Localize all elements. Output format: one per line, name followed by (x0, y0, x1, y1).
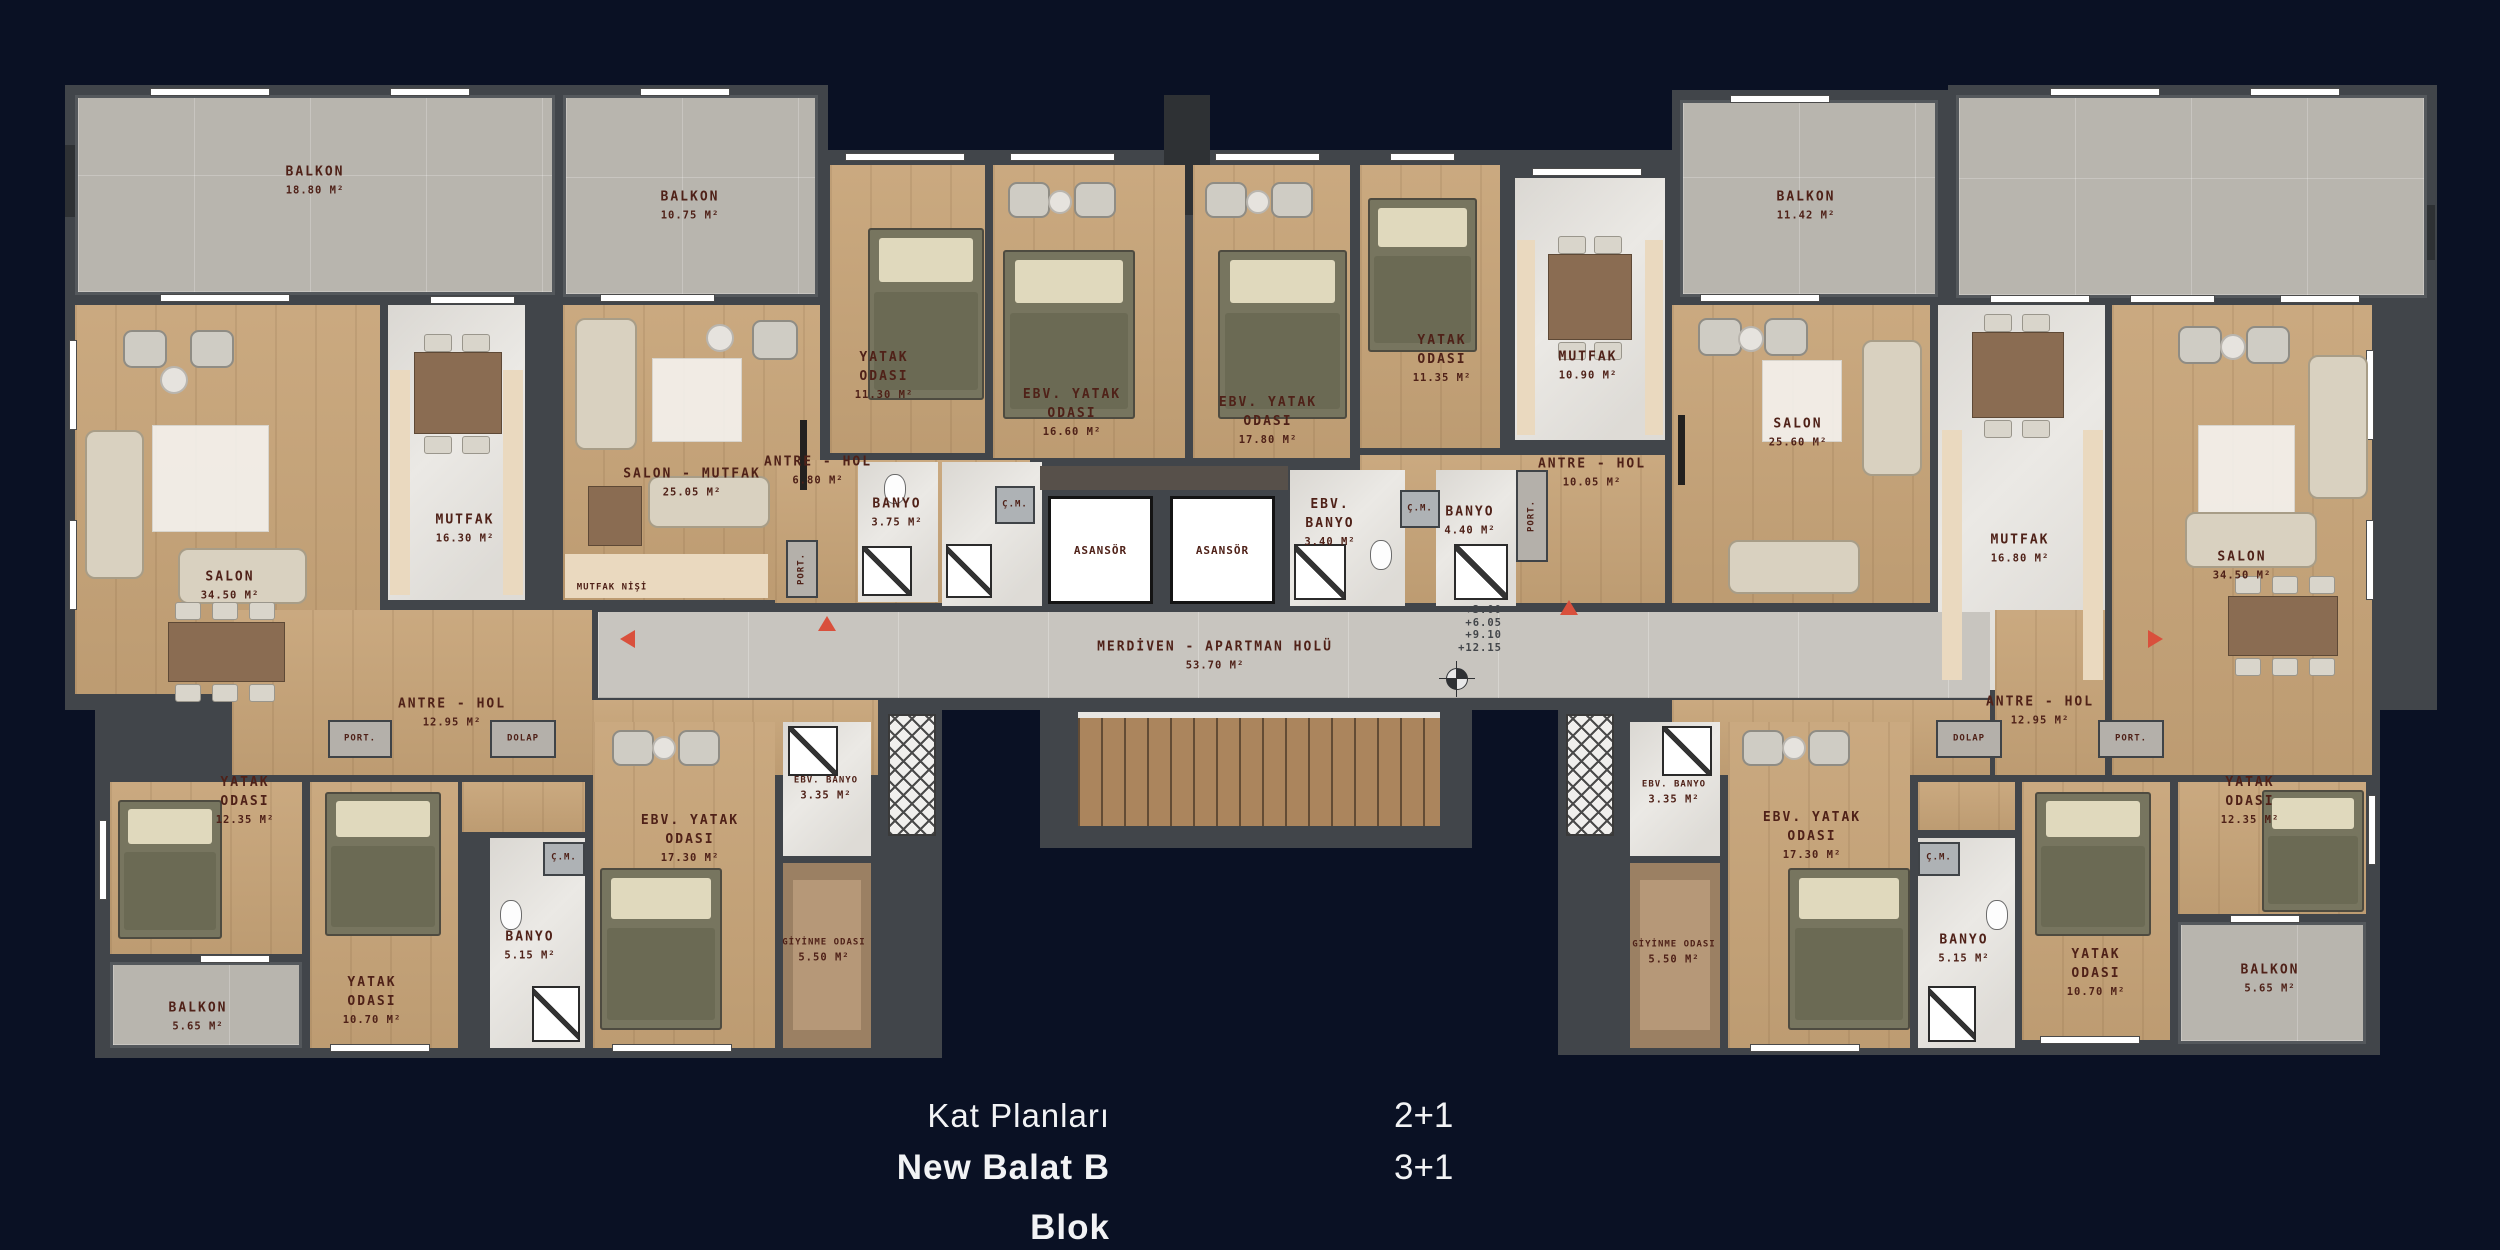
caption-block: Kat Planları New Balat B Blok (858, 1094, 1110, 1250)
armchair (1808, 730, 1850, 766)
rug (152, 425, 269, 532)
room-label-mutfak-nisi: MUTFAK NİŞİ (577, 581, 648, 594)
room-label-mutfak-1630: MUTFAK16.30 M² (436, 512, 495, 545)
kitchen-chair (2022, 420, 2050, 438)
window (1010, 153, 1115, 161)
room-label-antre-1005: ANTRE - HOL10.05 M² (1538, 456, 1646, 489)
label-port-left: PORT. (344, 732, 376, 745)
room-label-giyinme-left: GİYİNME ODASI5.50 M² (782, 936, 866, 963)
window (99, 820, 107, 900)
staircase (1078, 712, 1440, 826)
window (430, 296, 515, 304)
toilet (1986, 900, 2008, 930)
elevator-2-label: ASANSÖR (1196, 544, 1249, 557)
room-label-salon-2560: SALON25.60 M² (1769, 416, 1828, 449)
room-label-banyo-515-left: BANYO5.15 M² (504, 929, 555, 962)
room-label-ebv-banyo-335-left: EBV. BANYO3.35 M² (791, 774, 861, 801)
balcony-top-right (1956, 95, 2427, 298)
kitchen-chair (1984, 314, 2012, 332)
sofa (575, 318, 637, 450)
window (1730, 95, 1830, 103)
sofa (1862, 340, 1922, 476)
dining-chair (2272, 576, 2298, 594)
label-dolap-left: DOLAP (507, 732, 539, 745)
room-label-yatak-1130: YATAK ODASI11.30 M² (834, 349, 934, 401)
room-label-balkon-1142: BALKON11.42 M² (1777, 189, 1836, 222)
window (1700, 294, 1820, 302)
kitchen-counter (2083, 430, 2103, 680)
window (160, 294, 290, 302)
dining-table (168, 622, 285, 682)
room-label-salon-left: SALON34.50 M² (201, 569, 260, 602)
shower (532, 986, 580, 1042)
elevation-marks: +3.00 +6.05 +9.10 +12.15 (1440, 604, 1502, 654)
rug (2198, 425, 2295, 515)
kitchen-chair (1558, 236, 1586, 254)
unit-types-block: 2+1 3+1 (1394, 1094, 1453, 1198)
coffee-table (160, 366, 188, 394)
room-label-antre-680: ANTRE - HOL6.80 M² (764, 454, 872, 487)
kitchen-counter (390, 370, 410, 595)
sofa (2308, 355, 2368, 499)
room-label-banyo-440: BANYO4.40 M² (1444, 504, 1495, 537)
room-label-yatak-1235-left: YATAK ODASI12.35 M² (195, 774, 295, 826)
armchair (752, 320, 798, 360)
coffee-table (1782, 736, 1806, 760)
elevator-2: ASANSÖR (1170, 496, 1275, 604)
label-port-right: PORT. (2115, 732, 2147, 745)
room-label-banyo-375: BANYO3.75 M² (871, 496, 922, 529)
armchair (1074, 182, 1116, 218)
sofa (1728, 540, 1860, 594)
bed (1368, 198, 1477, 352)
window (390, 88, 470, 96)
bed (600, 868, 722, 1030)
balcony-door (200, 955, 270, 963)
room-label-yatak-1070-left: YATAK ODASI10.70 M² (322, 974, 422, 1026)
elevator-1: ASANSÖR (1048, 496, 1153, 604)
window (69, 520, 77, 610)
room-bath-approach-left (462, 782, 585, 832)
kitchen-chair (424, 334, 452, 352)
room-label-ebv-banyo-335-right: EBV. BANYO3.35 M² (1639, 778, 1709, 805)
direction-arrow-left-icon (620, 630, 635, 648)
kitchen-table (1972, 332, 2064, 418)
window (612, 1044, 732, 1052)
window (2040, 1036, 2140, 1044)
armchair (1205, 182, 1247, 218)
dining-chair (2309, 658, 2335, 676)
window (2368, 795, 2376, 865)
room-label-salon-right: SALON34.50 M² (2213, 549, 2272, 582)
window (640, 88, 730, 96)
window (2130, 295, 2215, 303)
rug (652, 358, 742, 442)
window (845, 153, 965, 161)
survey-compass-icon (1446, 668, 1468, 690)
elevation-value: +12.15 (1440, 642, 1502, 655)
room-label-giyinme-right: GİYİNME ODASI5.50 M² (1632, 938, 1716, 965)
side-stair-left (888, 714, 936, 836)
elevator-1-label: ASANSÖR (1074, 544, 1127, 557)
kitchen-table (414, 352, 502, 434)
window (330, 1044, 430, 1052)
window (1750, 1044, 1860, 1052)
bed (325, 792, 441, 936)
room-label-ebv-1660: EBV. YATAK ODASI16.60 M² (997, 386, 1147, 438)
room-label-balkon-1075: BALKON10.75 M² (661, 189, 720, 222)
window (69, 340, 77, 430)
armchair (2246, 326, 2290, 364)
armchair (678, 730, 720, 766)
sofa (85, 430, 144, 579)
direction-arrow-right-icon (2148, 630, 2163, 648)
label-cm-left: Ç.M. (551, 851, 577, 864)
label-cm-right: Ç.M. (1926, 851, 1952, 864)
kitchen-counter (1517, 240, 1535, 435)
label-cm-center-left: Ç.M. (1002, 498, 1028, 511)
label-port-center-left: PORT. (795, 553, 808, 585)
kitchen-counter (1942, 430, 1962, 680)
room-label-ebv-banyo-340: EBV. BANYO3.40 M² (1287, 496, 1373, 548)
armchair (1742, 730, 1784, 766)
room-label-mutfak-1680: MUTFAK16.80 M² (1991, 532, 2050, 565)
direction-arrow-up-icon (818, 616, 836, 631)
armchair (123, 330, 167, 368)
window (600, 294, 715, 302)
elevator-shaft-wall (1040, 466, 1288, 490)
kitchen-chair (462, 436, 490, 454)
tv-unit (1678, 415, 1685, 485)
dining-chair (212, 684, 238, 702)
window (1390, 153, 1455, 161)
label-dolap-right: DOLAP (1953, 732, 1985, 745)
room-label-banyo-515-right: BANYO5.15 M² (1938, 932, 1989, 965)
elevation-value: +6.05 (1440, 617, 1502, 630)
kitchen-chair (1984, 420, 2012, 438)
kitchen-chair (1594, 236, 1622, 254)
room-label-balkon-565-left: BALKON5.65 M² (169, 1000, 228, 1033)
dining-chair (175, 602, 201, 620)
armchair (1698, 318, 1742, 356)
kitchen-chair (424, 436, 452, 454)
room-label-merdiven: MERDİVEN - APARTMAN HOLÜ53.70 M² (1097, 639, 1333, 672)
dining-chair (249, 684, 275, 702)
shower (1454, 544, 1508, 600)
room-label-yatak-1070-right: YATAK ODASI10.70 M² (2046, 946, 2146, 998)
room-label-antre-1295-left: ANTRE - HOL12.95 M² (398, 696, 506, 729)
room-label-ebv-1730-left: EBV. YATAK ODASI17.30 M² (615, 812, 765, 864)
dining-chair (249, 602, 275, 620)
room-label-salon-mutfak: SALON - MUTFAK25.05 M² (623, 466, 761, 499)
caption-kat-planlari: Kat Planları (858, 1094, 1110, 1138)
room-label-mutfak-1090: MUTFAK10.90 M² (1559, 349, 1618, 382)
shower (1294, 544, 1346, 600)
coffee-table (1738, 326, 1764, 352)
toilet (500, 900, 522, 930)
coffee-table (706, 324, 734, 352)
dining-chair (2272, 658, 2298, 676)
bed (1788, 868, 1910, 1030)
elevation-value: +9.10 (1440, 629, 1502, 642)
kitchen-table (1548, 254, 1632, 340)
kitchen-chair (462, 334, 490, 352)
window (2250, 88, 2340, 96)
coffee-table (652, 736, 676, 760)
window (150, 88, 270, 96)
room-label-ebv-1780: EBV. YATAK ODASI17.80 M² (1193, 394, 1343, 446)
kitchen-chair (2022, 314, 2050, 332)
room-label-ebv-1730-right: EBV. YATAK ODASI17.30 M² (1737, 809, 1887, 861)
room-label-balkon-565-right: BALKON5.65 M² (2241, 962, 2300, 995)
coffee-table (1048, 190, 1072, 214)
window (1990, 295, 2090, 303)
unit-type-3plus1: 3+1 (1394, 1138, 1453, 1198)
balcony-door (2230, 915, 2300, 923)
dining-chair (2309, 576, 2335, 594)
dining-table (2228, 596, 2338, 656)
label-port-center-right: PORT. (1525, 500, 1538, 532)
dining-chair (212, 602, 238, 620)
shower (862, 546, 912, 596)
kitchen-counter (503, 370, 523, 595)
window (2280, 295, 2360, 303)
kitchen-counter (1645, 240, 1663, 435)
armchair (1271, 182, 1313, 218)
window (2366, 520, 2374, 600)
bed (2035, 792, 2151, 936)
direction-arrow-up-icon (1560, 600, 1578, 615)
shower (1928, 986, 1976, 1042)
armchair (612, 730, 654, 766)
side-stair-right (1566, 714, 1614, 836)
room-label-balkon-1880: BALKON18.80 M² (286, 164, 345, 197)
armchair (1008, 182, 1050, 218)
armchair (190, 330, 234, 368)
caption-blok-name: New Balat B Blok (858, 1138, 1110, 1250)
toilet (1370, 540, 1392, 570)
label-cm-center-right: Ç.M. (1407, 502, 1433, 515)
elevation-value: +3.00 (1440, 604, 1502, 617)
armchair (1764, 318, 1808, 356)
unit-type-2plus1: 2+1 (1394, 1094, 1453, 1138)
dining-chair (2235, 658, 2261, 676)
shower (788, 726, 838, 776)
floor-plan-canvas: ASANSÖR ASANSÖR (0, 0, 2500, 1250)
shower (1662, 726, 1712, 776)
shower (946, 544, 992, 598)
room-label-yatak-1135: YATAK ODASI11.35 M² (1392, 332, 1492, 384)
room-bath-approach-right (1918, 782, 2015, 830)
window (1532, 168, 1642, 176)
room-label-yatak-1235-right: YATAK ODASI12.35 M² (2200, 774, 2300, 826)
window (1215, 153, 1320, 161)
coffee-table (2220, 334, 2246, 360)
dining-chair (175, 684, 201, 702)
coffee-table (1246, 190, 1270, 214)
room-label-antre-1295-right: ANTRE - HOL12.95 M² (1986, 694, 2094, 727)
armchair (2178, 326, 2222, 364)
window (2050, 88, 2160, 96)
